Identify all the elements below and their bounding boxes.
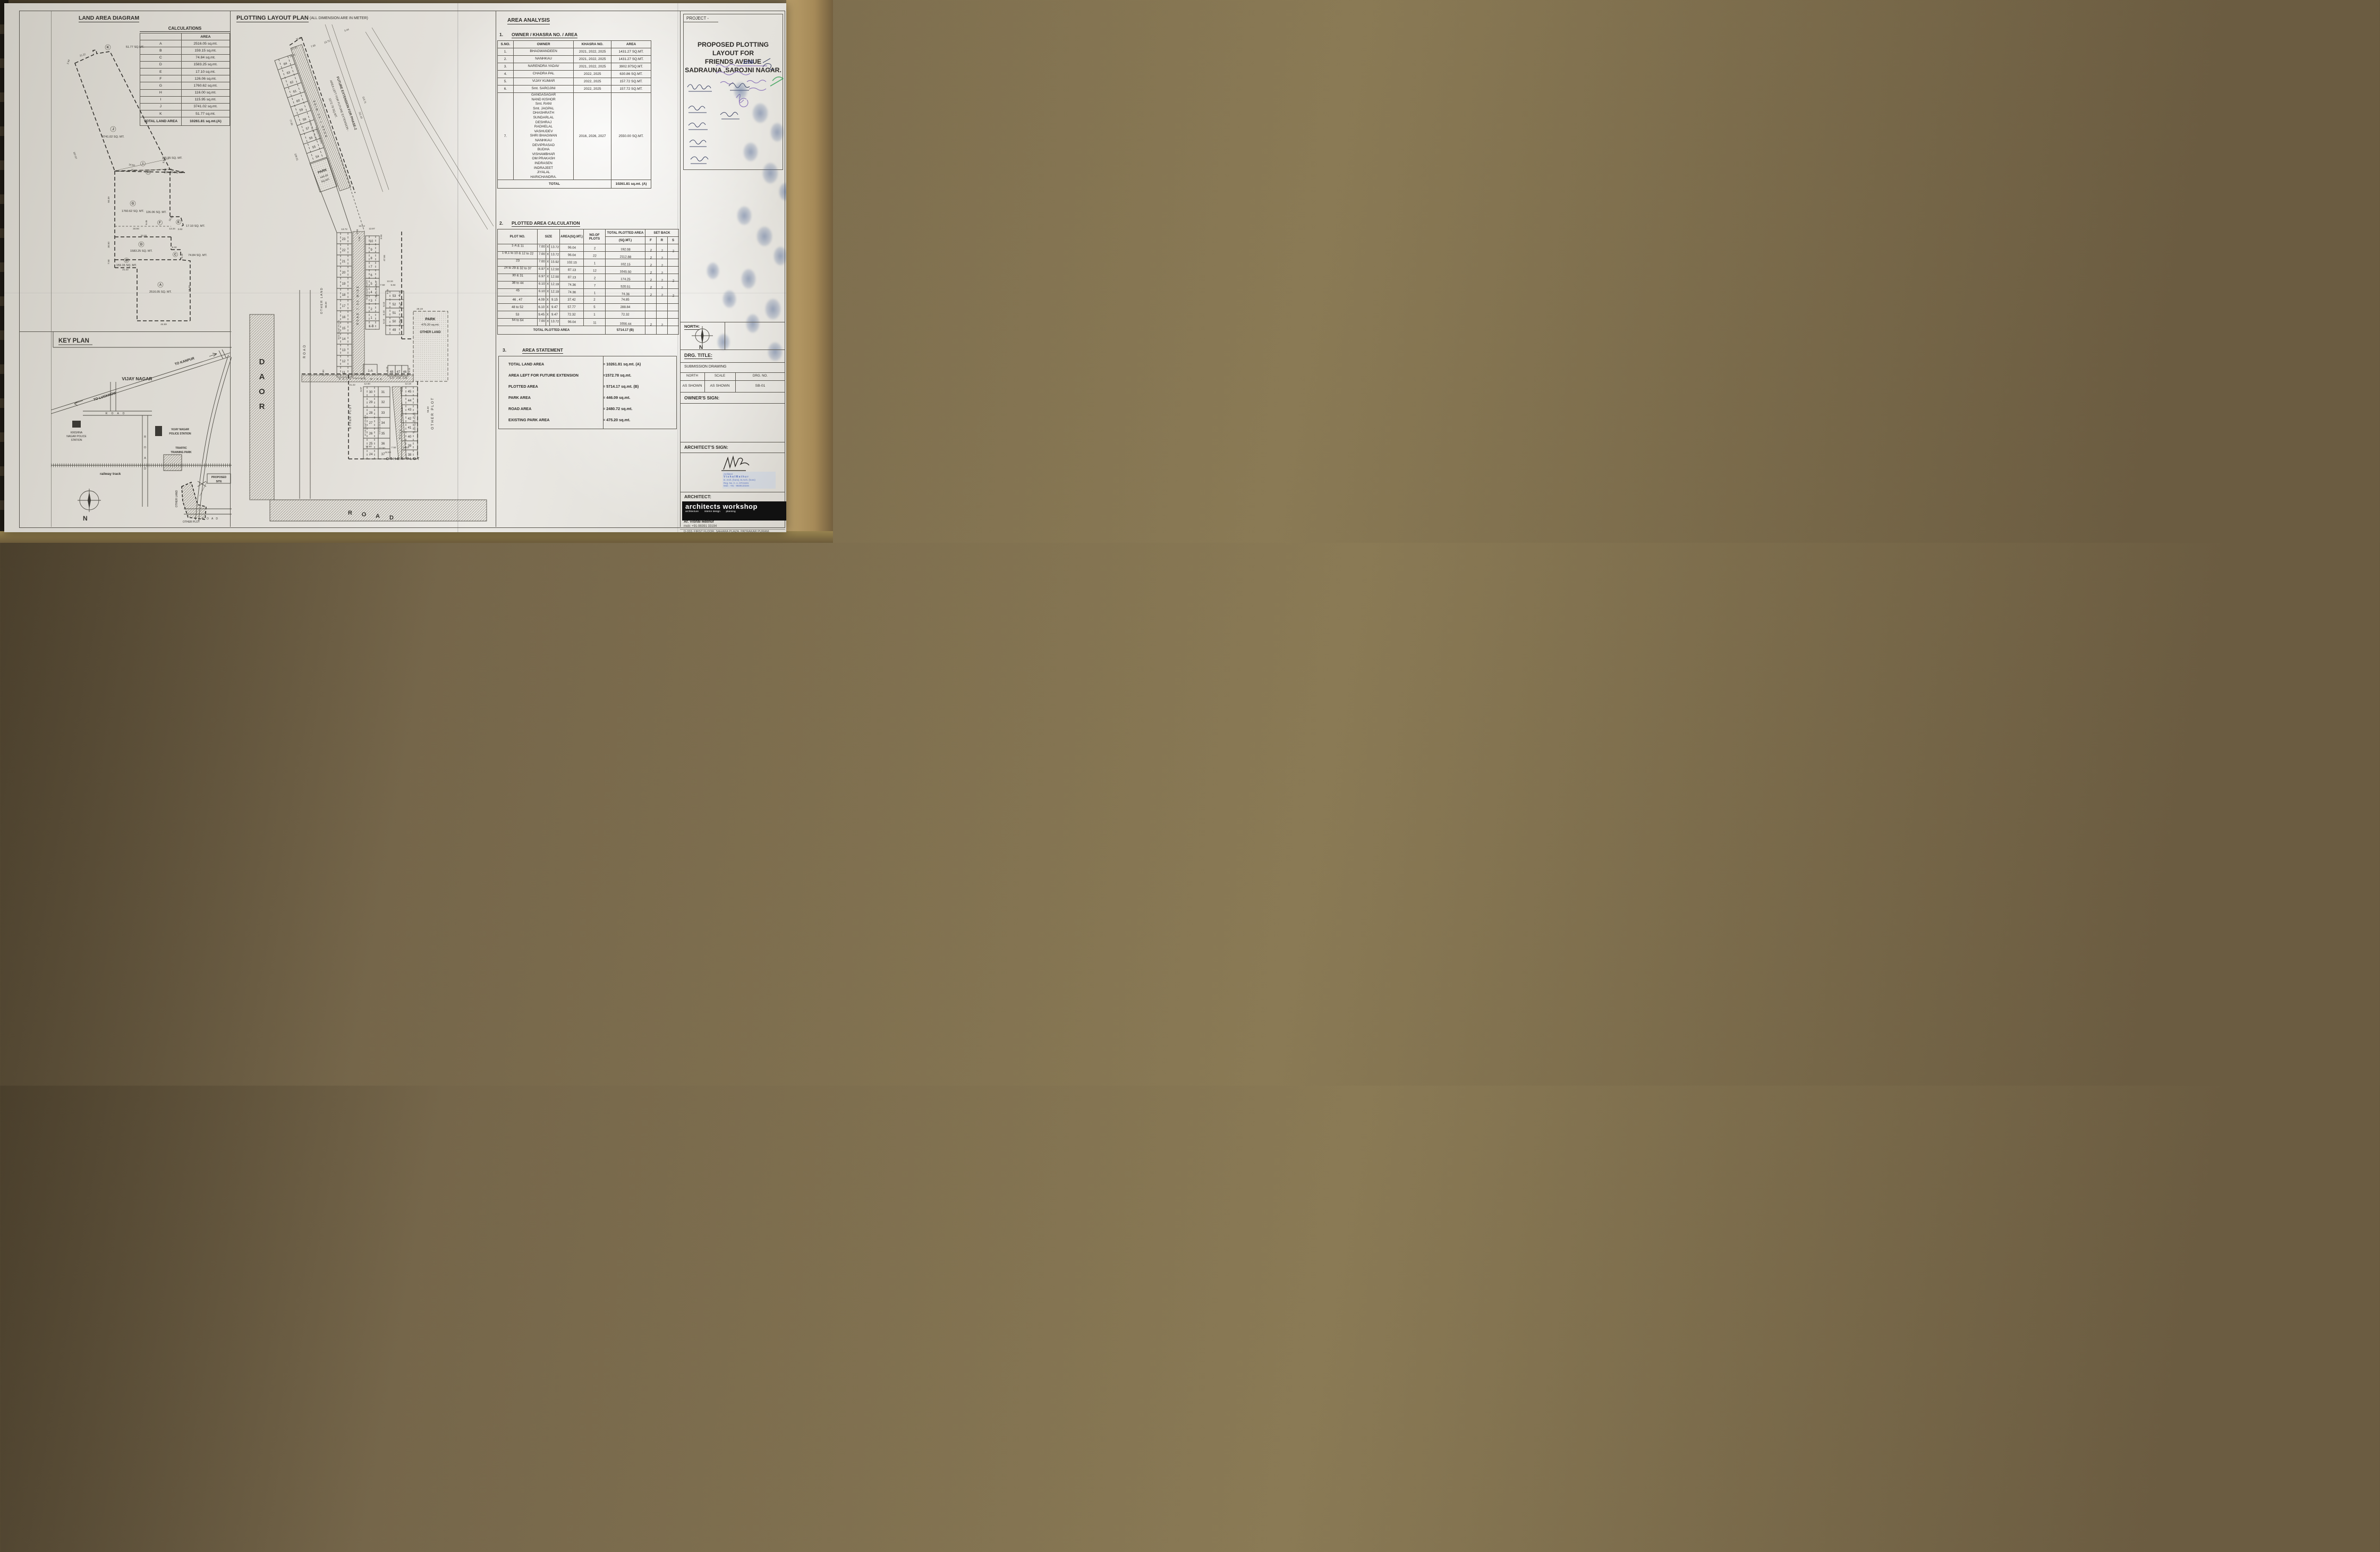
svg-text:A: A (159, 284, 162, 287)
svg-text:55: 55 (312, 146, 317, 150)
svg-text:VIJAY NAGAR: VIJAY NAGAR (122, 376, 152, 381)
svg-text:7.50: 7.50 (380, 284, 385, 286)
svg-text:A: A (144, 457, 146, 460)
owners-heading-no: 1. (499, 32, 503, 37)
svg-text:1-B: 1-B (369, 325, 373, 328)
svg-text:23: 23 (342, 238, 346, 241)
svg-text:R: R (259, 402, 265, 411)
col-drgno: DRG. NO. (735, 374, 785, 378)
svg-text:116.00 SQ. MT.: 116.00 SQ. MT. (164, 171, 185, 174)
svg-text:57: 57 (305, 127, 310, 131)
svg-text:77.00: 77.00 (289, 119, 294, 126)
svg-text:R O A D: R O A D (105, 412, 126, 415)
svg-text:J: J (112, 128, 114, 131)
svg-text:H: H (147, 171, 149, 174)
north-compass-icon: N (688, 326, 718, 349)
svg-text:46: 46 (403, 371, 407, 374)
svg-text:9.47: 9.47 (390, 377, 395, 379)
plot-column-10-1: 96.04 SQ.MT. PLOTS 7.00X13.72 PLOTS (365, 236, 379, 329)
drgno-value: SB-01 (735, 384, 785, 388)
svg-text:O: O (259, 387, 265, 396)
svg-text:44.69: 44.69 (385, 451, 391, 454)
svg-text:TRAINING PARK: TRAINING PARK (171, 451, 192, 454)
svg-text:6.10: 6.10 (382, 319, 385, 323)
svg-text:51.77 SQ.MT.: 51.77 SQ.MT. (126, 46, 144, 49)
svg-text:2.44: 2.44 (344, 28, 350, 32)
svg-text:44: 44 (408, 399, 412, 403)
svg-text:51.91: 51.91 (141, 234, 147, 237)
svg-text:E: E (177, 221, 180, 224)
svg-text:2.44: 2.44 (66, 59, 71, 65)
svg-text:F: F (159, 221, 161, 225)
svg-text:KEY PLAN: KEY PLAN (58, 338, 89, 344)
table-header-row: S.NO. OWNER KHASRA NO. AREA (498, 41, 651, 48)
scanned-drawing-sheet: LAND AREA DIAGRAM PLOTTING LAYOUT PLAN (… (4, 3, 786, 532)
svg-text:16: 16 (342, 316, 346, 319)
svg-text:5.84: 5.84 (391, 284, 396, 286)
svg-text:ROAD 7.50 WIDE: ROAD 7.50 WIDE (339, 378, 384, 380)
svg-text:64: 64 (283, 62, 288, 66)
svg-text:9.15: 9.15 (181, 253, 183, 258)
owners-table: S.NO. OWNER KHASRA NO. AREA 1.BHAGWANDEE… (497, 40, 651, 189)
svg-text:3.53: 3.53 (380, 234, 382, 239)
svg-text:12.50: 12.50 (379, 447, 385, 449)
svg-text:K: K (107, 46, 109, 49)
svg-text:7.50: 7.50 (310, 44, 316, 48)
svg-text:13.72: 13.72 (341, 228, 347, 231)
table-row: 1.BHAGWANDEEN2021, 2022, 20251431.27 SQ.… (498, 48, 651, 56)
svg-text:1239: 1239 (743, 59, 753, 65)
svg-text:47: 47 (397, 371, 401, 374)
svg-text:36: 36 (381, 442, 385, 446)
svg-text:NAGAR POLICE: NAGAR POLICE (66, 435, 87, 438)
table-row: 4.CHADRA PAL2022, 2025630.86 SQ.MT. (498, 71, 651, 78)
project-label: PROJECT - (684, 14, 718, 22)
col-scale: SCALE (704, 374, 735, 378)
svg-text:SITE: SITE (216, 480, 222, 483)
svg-text:3741.02 SQ. MT.: 3741.02 SQ. MT. (102, 135, 124, 139)
svg-text:18: 18 (342, 294, 346, 297)
svg-text:62: 62 (290, 81, 294, 85)
svg-text:9.50: 9.50 (399, 303, 402, 308)
svg-text:113.71: 113.71 (362, 96, 367, 104)
svg-text:N: N (699, 345, 703, 349)
svg-text:I: I (142, 163, 143, 166)
statement-heading: AREA STATEMENT (522, 347, 563, 354)
svg-text:34: 34 (381, 422, 385, 425)
svg-text:VIJAY NAGAR: VIJAY NAGAR (171, 428, 189, 431)
svg-text:6.10: 6.10 (401, 387, 403, 391)
svg-text:31: 31 (381, 391, 385, 394)
svg-text:87.125 SQ.MT. PLOTS: 87.125 SQ.MT. PLOTS (364, 415, 367, 436)
svg-text:C: C (174, 253, 177, 257)
svg-text:30: 30 (369, 391, 373, 394)
svg-text:D: D (259, 357, 265, 366)
svg-text:3: 3 (370, 300, 372, 303)
table-row: 3.NARENDRA YADAV2021, 2022, 20253902.97S… (498, 63, 651, 71)
svg-text:61: 61 (293, 90, 297, 94)
svg-text:58: 58 (302, 118, 307, 122)
brand-tagline: architecture interior design planning (685, 510, 785, 513)
phase1-strip: 6463626160595857565554 96.04 SQ.MT. PLOT… (256, 24, 396, 215)
svg-text:A: A (259, 372, 265, 381)
svg-text:5: 5 (370, 283, 372, 286)
architect-mobile: mob: +91-98391 33194 (684, 525, 717, 528)
svg-text:0.93: 0.93 (356, 229, 359, 234)
svg-text:PROPOSED: PROPOSED (211, 476, 227, 479)
svg-text:STATION: STATION (71, 439, 82, 442)
architect-person: Ar. Vishal Mathur (684, 520, 714, 524)
svg-text:159.15 SQ. MT.: 159.15 SQ. MT. (116, 264, 137, 267)
architects-workshop-banner: architects workshop architecture interio… (682, 501, 786, 521)
svg-text:railway track: railway track (100, 472, 121, 476)
svg-text:38: 38 (408, 454, 412, 457)
svg-text:2516.05 SQ. MT.: 2516.05 SQ. MT. (149, 291, 172, 294)
architect-address1: D-333, FIRST FLOOR, SAHARA PLAZA, PATRAK… (684, 530, 770, 532)
svg-text:44.69: 44.69 (160, 323, 167, 326)
svg-text:N: N (83, 515, 88, 522)
svg-text:53: 53 (393, 295, 396, 298)
svg-text:1760.62 SQ. MT.: 1760.62 SQ. MT. (122, 210, 144, 213)
svg-text:10.12: 10.12 (397, 291, 403, 297)
svg-text:ROAD 7.50 WIDE: ROAD 7.50 WIDE (356, 285, 360, 325)
svg-text:14: 14 (342, 338, 346, 341)
svg-text:22: 22 (342, 249, 346, 252)
svg-text:1: 1 (370, 317, 372, 320)
svg-text:11.85: 11.85 (399, 319, 402, 325)
scale-value: AS SHOWN (704, 384, 735, 388)
svg-text:48: 48 (390, 371, 394, 374)
svg-text:12: 12 (342, 360, 346, 363)
svg-text:41: 41 (408, 427, 412, 430)
submission-drawing: SUBMISSION DRAWING (684, 365, 726, 369)
svg-text:34.94: 34.94 (129, 163, 135, 167)
svg-text:52: 52 (393, 303, 396, 306)
svg-text:6.10: 6.10 (382, 310, 385, 315)
svg-text:POLICE STATION: POLICE STATION (169, 432, 191, 436)
svg-text:R O A D: R O A D (202, 517, 219, 521)
svg-text:7.50: 7.50 (392, 446, 396, 449)
svg-text:13.34: 13.34 (387, 280, 393, 283)
svg-text:OTHER LAND: OTHER LAND (320, 287, 324, 314)
statement-row: PLOTTED AREA= 5714.17 sq.mt. (B) (499, 381, 676, 392)
svg-text:R: R (348, 510, 352, 516)
svg-text:107.07: 107.07 (73, 151, 78, 159)
border-line (680, 11, 681, 527)
plotted-heading-no: 2. (499, 220, 503, 226)
svg-text:9.45: 9.45 (145, 220, 148, 225)
table-header-row: PLOT NO. SIZE AREA(SQ.MT.) NO.OF PLOTS T… (498, 229, 679, 237)
plotted-heading: PLOTTED AREA CALCULATION (512, 220, 580, 227)
land-area-diagram: 21.222.44107.0734.9435.578.646.6450.399.… (51, 16, 237, 332)
svg-text:O: O (362, 511, 367, 518)
svg-text:50.39: 50.39 (107, 197, 110, 203)
svg-text:19: 19 (342, 283, 346, 286)
svg-text:6.10: 6.10 (386, 366, 388, 371)
svg-text:6.10: 6.10 (382, 302, 385, 306)
svg-text:7.00X13.72 PLOTS: 7.00X13.72 PLOTS (376, 281, 378, 299)
svg-text:3.62: 3.62 (178, 228, 183, 231)
svg-text:KRISHNA: KRISHNA (71, 431, 83, 434)
svg-text:9.15: 9.15 (408, 368, 411, 372)
svg-text:17: 17 (342, 305, 346, 308)
svg-text:PARK: PARK (425, 318, 435, 321)
svg-text:R: R (144, 436, 146, 439)
svg-text:96.04 SQ.MT. PLOTS: 96.04 SQ.MT. PLOTS (338, 320, 340, 339)
svg-text:34.94: 34.94 (295, 36, 302, 41)
brand-name: architects workshop (685, 502, 785, 510)
svg-text:63: 63 (286, 71, 291, 75)
svg-text:28: 28 (369, 412, 373, 415)
svg-text:OTHER PLOT: OTHER PLOT (386, 457, 421, 461)
svg-text:O: O (144, 446, 146, 449)
svg-text:24: 24 (369, 453, 373, 456)
svg-text:34.94: 34.94 (133, 227, 139, 230)
col-north: NORTH (680, 374, 704, 378)
svg-text:21.22: 21.22 (349, 383, 355, 386)
svg-text:D: D (389, 515, 394, 521)
svg-text:13.72: 13.72 (324, 39, 330, 44)
statement-row: PARK AREA= 446.09 sq.mt. (499, 392, 676, 403)
svg-text:TRAFFIC: TRAFFIC (175, 447, 187, 450)
statement-row: TOTAL LAND AREA= 10261.81 sq.mt. (A) (499, 359, 676, 370)
svg-text:26: 26 (369, 432, 373, 436)
svg-text:47.58: 47.58 (383, 255, 386, 261)
statement-row: EXISTING PARK AREA= 475.20 sq.mt. (499, 414, 676, 425)
svg-text:56.30: 56.30 (188, 285, 191, 292)
svg-text:D: D (144, 467, 146, 471)
svg-text:13: 13 (342, 349, 346, 352)
table-row: 2.NANHKAU2021, 2022, 20251431.27 SQ.MT. (498, 56, 651, 63)
svg-text:2: 2 (370, 308, 372, 311)
svg-text:G: G (132, 202, 134, 206)
svg-text:54: 54 (315, 155, 320, 159)
owners-sign-label: OWNER'S SIGN: (684, 395, 719, 400)
svg-text:51: 51 (393, 312, 396, 315)
svg-text:6.97X12.50 PLOTS: 6.97X12.50 PLOTS (379, 416, 381, 434)
svg-text:15: 15 (342, 327, 346, 330)
svg-text:74.359 SQ.MT. PLOTS: 74.359 SQ.MT. PLOTS (414, 412, 416, 433)
drg-title-label: DRG. TITLE: (684, 353, 712, 359)
park-475: PARK 475.20 sq.mt. OTHER LAND (413, 311, 448, 381)
svg-text:60: 60 (296, 99, 301, 104)
svg-text:4: 4 (370, 291, 372, 294)
plotted-area-table: PLOT NO. SIZE AREA(SQ.MT.) NO.OF PLOTS T… (497, 229, 679, 335)
svg-text:12.50: 12.50 (364, 382, 370, 385)
svg-text:8: 8 (370, 257, 372, 260)
svg-text:115.95 SQ. MT.: 115.95 SQ. MT. (162, 157, 183, 160)
plotting-subtitle: (ALL DIMENSION ARE IN METER) (310, 16, 368, 20)
svg-text:26.19: 26.19 (416, 308, 423, 310)
svg-text:9.45: 9.45 (386, 289, 389, 294)
svg-text:88.39: 88.39 (325, 302, 327, 308)
svg-text:49: 49 (393, 329, 396, 332)
svg-text:OTHER LAND: OTHER LAND (420, 331, 441, 334)
statement-row: AREA LEFT FOR FUTURE EXTENSION=1572.78 s… (499, 370, 676, 381)
svg-text:30.50: 30.50 (107, 242, 110, 248)
statement-row: ROAD AREA= 2480.72 sq.mt. (499, 403, 676, 414)
svg-text:OTHER PLOT: OTHER PLOT (349, 404, 352, 429)
svg-text:13.12: 13.12 (359, 225, 365, 227)
svg-text:A: A (376, 513, 380, 519)
svg-text:12.50: 12.50 (365, 445, 372, 448)
svg-text:8.18: 8.18 (172, 246, 177, 249)
project-title-line: PROPOSED PLOTTING (684, 40, 783, 49)
svg-text:13.34: 13.34 (169, 227, 175, 230)
svg-text:56.30: 56.30 (427, 406, 429, 413)
svg-text:9: 9 (370, 249, 372, 252)
svg-text:32: 32 (381, 401, 385, 404)
svg-text:ROAD: ROAD (303, 344, 307, 358)
svg-text:48.80: 48.80 (322, 370, 325, 376)
svg-text:4.09: 4.09 (403, 377, 407, 379)
svg-text:27: 27 (369, 422, 373, 425)
svg-text:12.19: 12.19 (405, 382, 411, 385)
table-row: 48 to 526.10X9.47 57.775288.84 (498, 304, 679, 311)
north-value: AS SHOWN (680, 384, 704, 388)
svg-text:1-A: 1-A (368, 370, 372, 373)
svg-text:35: 35 (381, 432, 385, 436)
svg-text:21.22: 21.22 (122, 268, 129, 271)
svg-text:40: 40 (408, 436, 412, 439)
svg-text:74.84 SQ. MT.: 74.84 SQ. MT. (188, 254, 207, 257)
section-title-area-analysis: AREA ANALYSIS (507, 18, 550, 24)
svg-text:7: 7 (370, 266, 372, 269)
svg-text:21: 21 (342, 260, 346, 263)
svg-text:50: 50 (393, 320, 396, 323)
svg-text:56: 56 (309, 137, 313, 141)
svg-text:96.04 SQ.MT. PLOTS: 96.04 SQ.MT. PLOTS (366, 280, 368, 300)
svg-text:29: 29 (369, 401, 373, 404)
table-row: 5.VIJAY KUMAR2022, 2025157.72 SQ.MT. (498, 78, 651, 86)
svg-text:45: 45 (408, 390, 412, 394)
svg-text:10.12: 10.12 (168, 215, 174, 222)
owners-heading: OWNER / KHASRA NO. / AREA (512, 32, 577, 38)
svg-text:20: 20 (342, 271, 346, 275)
svg-text:B: B (125, 259, 128, 262)
svg-text:43: 43 (408, 408, 412, 412)
svg-text:6.97: 6.97 (360, 387, 362, 391)
svg-text:12.19: 12.19 (403, 446, 409, 449)
architect-stamp: Architect V i s h a l M a t h u r D. Arc… (722, 472, 776, 489)
plotting-layout-plan: 6463626160595857565554 96.04 SQ.MT. PLOT… (233, 24, 496, 526)
svg-text:D: D (140, 243, 143, 246)
section-title-plotting: PLOTTING LAYOUT PLAN (236, 15, 309, 22)
area-statement-box: TOTAL LAND AREA= 10261.81 sq.mt. (A) ARE… (498, 356, 677, 429)
svg-text:475.20 sq.mt.: 475.20 sq.mt. (421, 323, 439, 327)
architect-label: ARCHITECT: (684, 494, 711, 499)
table-total-row: TOTAL10261.81 sq.mt. (A) (498, 180, 651, 189)
statement-heading-no: 3. (503, 347, 506, 353)
key-plan-map: KEY PLAN TO LUCKNOW TO KANPUR VIJAY NAGA… (51, 331, 232, 527)
svg-text:42: 42 (408, 417, 412, 421)
svg-text:6: 6 (370, 274, 372, 277)
svg-text:7.00: 7.00 (358, 236, 361, 241)
parcel-j-outline (75, 50, 170, 171)
parcel-labels: K 51.77 SQ.MT. J 3741.02 SQ. MT. I 115.9… (102, 45, 207, 294)
svg-text:13.97: 13.97 (369, 227, 375, 230)
svg-text:OTHER LAND: OTHER LAND (175, 490, 178, 508)
svg-text:1583.25 SQ. MT.: 1583.25 SQ. MT. (130, 250, 152, 253)
svg-text:OTHER PLOT: OTHER PLOT (431, 397, 435, 430)
svg-text:11: 11 (342, 371, 346, 374)
svg-text:21.22: 21.22 (79, 53, 86, 57)
svg-text:4.09: 4.09 (396, 377, 401, 379)
folder-edge (786, 0, 833, 543)
svg-text:33: 33 (381, 412, 385, 415)
architects-sign-label: ARCHITECT'S SIGN: (684, 445, 728, 450)
svg-text:59: 59 (299, 108, 304, 113)
svg-text:17.10 SQ. MT.: 17.10 SQ. MT. (186, 225, 205, 228)
svg-text:126.06 SQ. MT.: 126.06 SQ. MT. (146, 211, 167, 214)
svg-text:7.50: 7.50 (107, 259, 110, 264)
table-surface (0, 531, 833, 543)
architect-signature (720, 455, 763, 473)
table-row: 6.Smt. SAROJINI2022, 2025157.72 SQ.MT. (498, 86, 651, 93)
svg-text:10: 10 (370, 240, 373, 243)
svg-text:109.51: 109.51 (294, 153, 299, 161)
table-row: 7.GANGASAGAR NAND KISHOR Smt. RANI Smt. … (498, 93, 651, 180)
svg-text:OTHER PLOT: OTHER PLOT (183, 521, 200, 524)
svg-text:35.57: 35.57 (131, 168, 138, 172)
